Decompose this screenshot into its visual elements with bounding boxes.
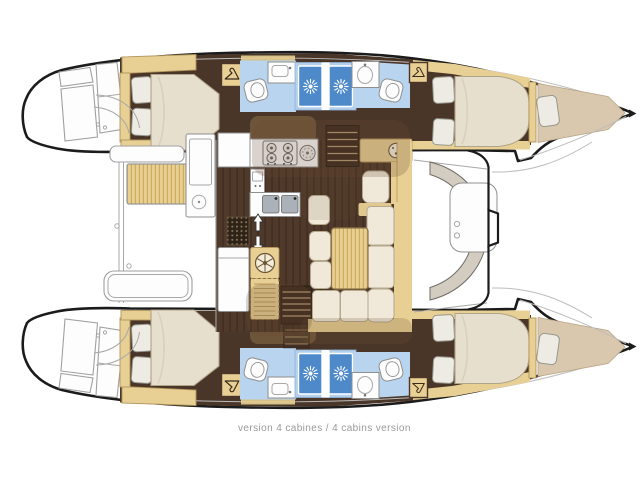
dining-table	[332, 228, 369, 289]
fridge-cabinet	[218, 248, 249, 312]
cockpit-table	[127, 164, 191, 204]
forward-cockpit	[414, 142, 592, 318]
boat-floor-plan	[0, 0, 640, 480]
settee-cushion	[313, 291, 341, 322]
settee-cushion	[367, 207, 394, 246]
boat-floor-plan-page: version 4 cabines / 4 cabins version	[0, 0, 640, 480]
corner-cabinet	[218, 133, 250, 167]
settee-cushion	[341, 291, 369, 322]
vent-grate-icon	[227, 217, 249, 245]
cockpit-bench	[110, 146, 184, 162]
stool	[311, 262, 332, 289]
settee-cushion	[367, 289, 394, 322]
wetbar	[186, 134, 215, 217]
stool	[310, 232, 331, 261]
caption: version 4 cabines / 4 cabins version	[238, 423, 411, 434]
settee-cushion	[367, 246, 394, 288]
cockpit-bench	[104, 271, 192, 301]
deck-step	[489, 210, 499, 246]
washing-machine-icon	[251, 248, 280, 279]
saloon	[216, 120, 412, 348]
